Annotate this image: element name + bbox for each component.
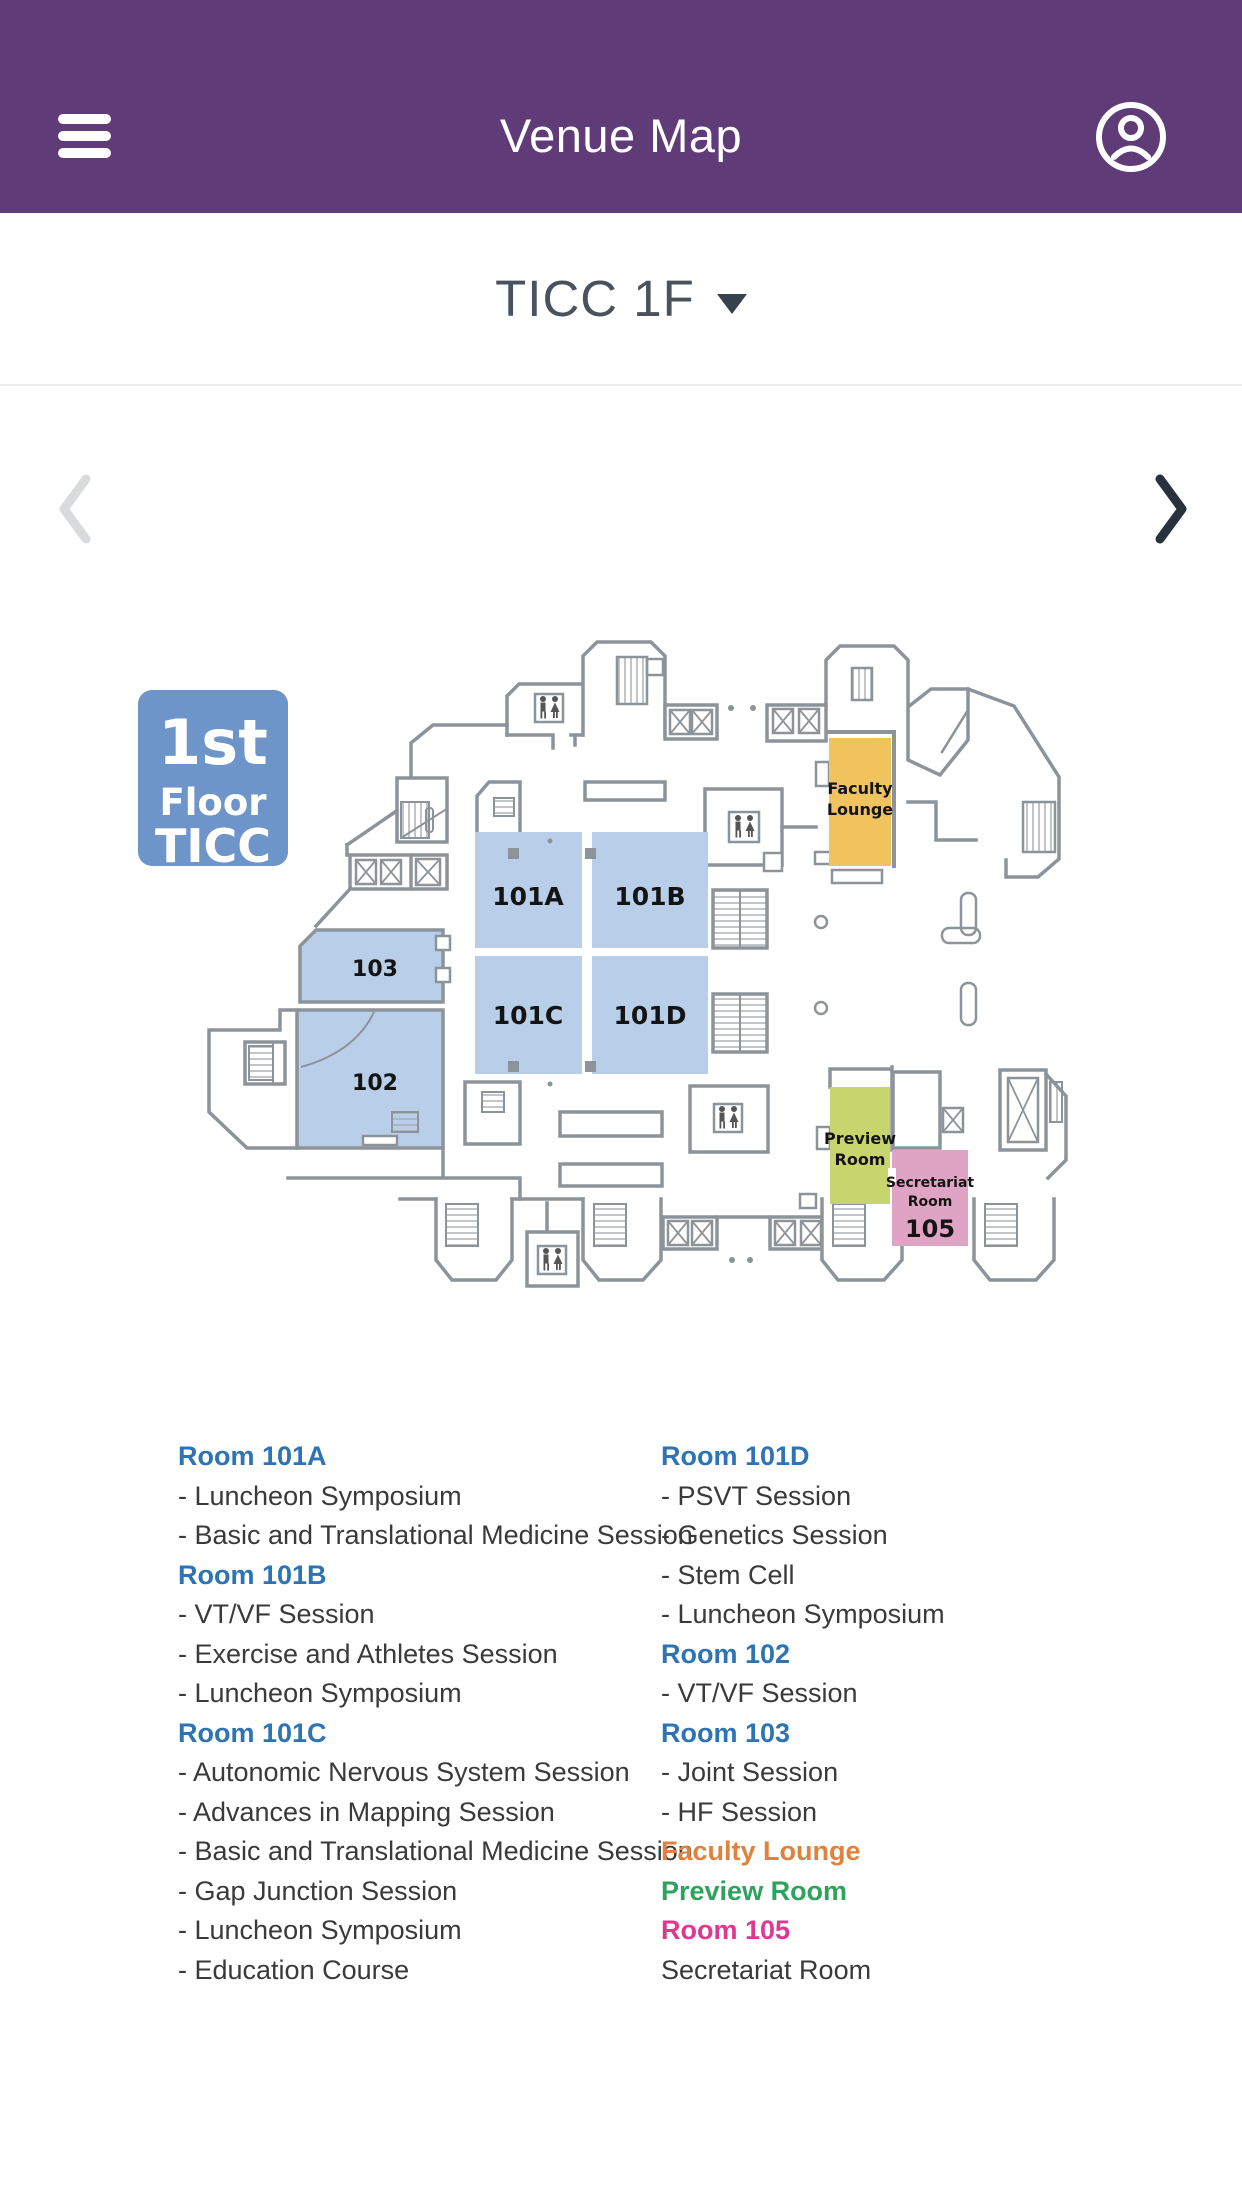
floor-badge-line2: Floor [159,781,267,824]
secretariat-label: Secretariat [886,1175,975,1191]
next-floor-button[interactable] [1146,471,1194,547]
legend-session-item: - Stem Cell [661,1556,1161,1596]
floor-plan: 103 102 101A 101B 101C 101D Faculty [130,612,1090,1302]
preview-room-label: Room [835,1150,886,1169]
floor-badge: 1st Floor TICC [138,690,288,873]
legend-session-item: - VT/VF Session [661,1674,1161,1714]
legend-session-item: - VT/VF Session [178,1595,661,1635]
hall-101-block: 101A 101B 101C 101D [475,832,708,1087]
legend-session-item: - Luncheon Symposium [661,1595,1161,1635]
room-101c-label: 101C [493,1001,564,1030]
legend-room-heading: Room 105 [661,1911,1161,1951]
legend-session-item: - Luncheon Symposium [178,1674,661,1714]
floor-badge-line1: 1st [158,706,268,779]
legend-session-item: - Autonomic Nervous System Session [178,1753,661,1793]
faculty-lounge-room: Faculty Lounge [827,738,893,866]
legend-column-left: Room 101A- Luncheon Symposium- Basic and… [178,1437,661,1990]
room-101d-label: 101D [614,1001,687,1030]
legend-session-item: - Joint Session [661,1753,1161,1793]
room-101b-label: 101B [614,882,685,911]
legend-room-heading: Room 101B [178,1556,661,1596]
profile-icon[interactable] [1093,99,1169,175]
room-102: 102 [297,1010,443,1148]
legend-session-item: - Gap Junction Session [178,1872,661,1912]
legend-session-item: - Basic and Translational Medicine Sessi… [178,1832,661,1872]
caret-down-icon [717,294,747,314]
legend-room-heading: Faculty Lounge [661,1832,1161,1872]
app-header: Venue Map [0,0,1242,213]
legend-session-item: - Basic and Translational Medicine Sessi… [178,1516,661,1556]
legend-room-heading: Room 101D [661,1437,1161,1477]
legend-room-heading: Preview Room [661,1872,1161,1912]
legend-room-heading: Room 101C [178,1714,661,1754]
legend-room-heading: Room 101A [178,1437,661,1477]
legend-session-item: - Advances in Mapping Session [178,1793,661,1833]
floor-selector-bar: TICC 1F [0,213,1242,386]
secretariat-label: Room [908,1194,953,1210]
secretariat-room-105: Secretariat Room 105 [886,1150,975,1246]
legend-session-item: - Exercise and Athletes Session [178,1635,661,1675]
room-103: 103 [300,930,450,1002]
faculty-lounge-label: Lounge [827,800,893,819]
venue-map-screen: Venue Map TICC 1F [0,0,1242,2208]
secretariat-number: 105 [905,1215,955,1243]
legend-session-item: - Education Course [178,1951,661,1991]
legend-room-heading: Room 103 [661,1714,1161,1754]
legend-room-heading: Secretariat Room [661,1951,1161,1991]
room-102-label: 102 [352,1071,398,1096]
floor-label: TICC 1F [495,269,695,328]
legend-session-item: - Luncheon Symposium [178,1477,661,1517]
previous-floor-button[interactable] [52,471,100,547]
legend-session-item: - Genetics Session [661,1516,1161,1556]
legend-room-heading: Room 102 [661,1635,1161,1675]
faculty-lounge-label: Faculty [827,779,893,798]
preview-room-label: Preview [824,1129,896,1148]
floor-badge-line3: TICC [155,819,271,873]
legend-session-item: - Luncheon Symposium [178,1911,661,1951]
room-103-label: 103 [352,957,398,982]
floor-dropdown[interactable]: TICC 1F [0,213,1242,384]
room-101a-label: 101A [492,882,564,911]
room-legend: Room 101A- Luncheon Symposium- Basic and… [178,1437,1198,1990]
legend-column-right: Room 101D- PSVT Session- Genetics Sessio… [661,1437,1161,1990]
page-title: Venue Map [0,108,1242,163]
legend-session-item: - HF Session [661,1793,1161,1833]
legend-session-item: - PSVT Session [661,1477,1161,1517]
